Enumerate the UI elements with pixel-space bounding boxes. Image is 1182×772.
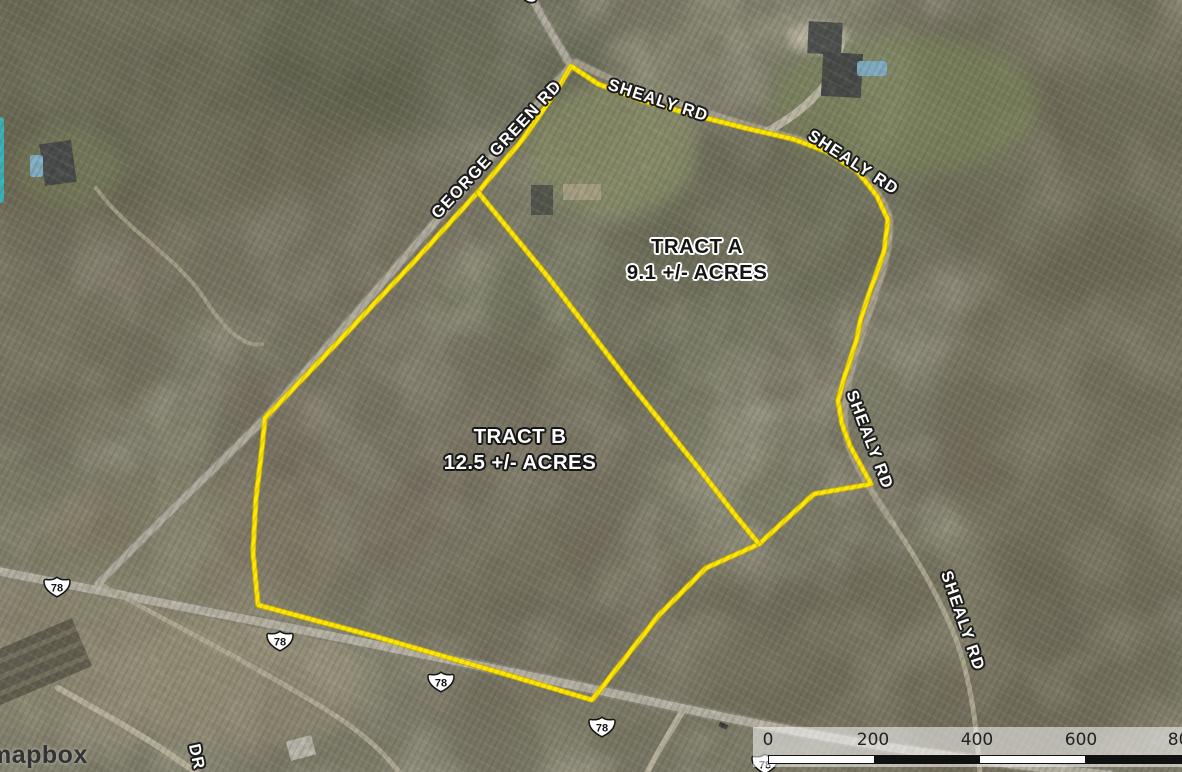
scale-tick-400: 400: [961, 730, 993, 750]
tract-a-label: TRACT A 9.1 +/- ACRES: [627, 234, 768, 286]
scale-tick-0: 0: [763, 730, 774, 750]
route-78-shield-2: 78: [265, 630, 295, 653]
scale-tick-600: 600: [1065, 730, 1097, 750]
tract-a-name: TRACT A: [627, 234, 768, 260]
mapbox-attribution[interactable]: mapbox: [0, 741, 88, 770]
tract-b-name: TRACT B: [444, 424, 596, 450]
scale-bar: 0 200 400 600 800: [753, 727, 1182, 767]
map-viewport[interactable]: G SHEALY RD SHEALY RD SHEALY RD SHEALY R…: [0, 0, 1182, 772]
route-78-shield-1: 78: [42, 576, 72, 599]
scale-tick-800: 800: [1168, 730, 1182, 750]
route-number: 78: [265, 630, 295, 653]
scale-bar-strip: [768, 755, 1182, 764]
aerial-imagery: [0, 0, 1182, 772]
tract-b-acreage: 12.5 +/- ACRES: [444, 450, 596, 476]
route-78-shield-4: 78: [587, 716, 617, 739]
route-number: 78: [426, 671, 456, 694]
route-number: 78: [42, 576, 72, 599]
tract-a-acreage: 9.1 +/- ACRES: [627, 260, 768, 286]
route-number: 78: [587, 716, 617, 739]
scale-tick-200: 200: [857, 730, 889, 750]
tract-b-label: TRACT B 12.5 +/- ACRES: [444, 424, 596, 476]
route-78-shield-3: 78: [426, 671, 456, 694]
forest-grain: [0, 0, 1182, 772]
